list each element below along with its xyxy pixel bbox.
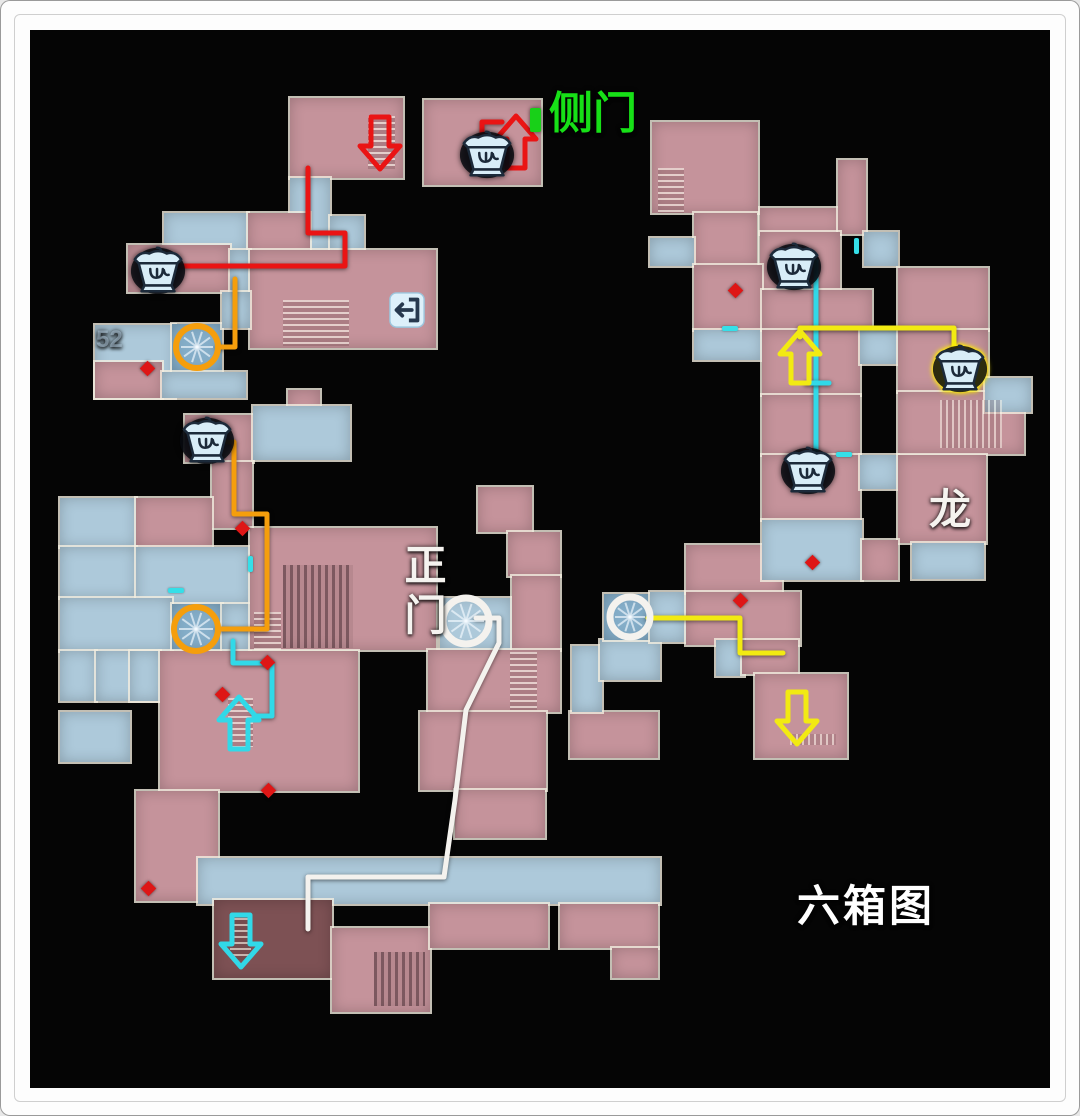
red-diamond-marker — [728, 283, 744, 299]
red-diamond-marker — [805, 555, 821, 571]
red-diamond-marker — [261, 783, 277, 799]
flat-markers-layer — [0, 0, 1080, 1116]
red-diamond-marker — [140, 361, 156, 377]
label-dragon: 龙 — [929, 489, 971, 531]
red-diamond-marker — [215, 687, 231, 703]
screenshot-frame: 侧门 正门 龙 六箱图 52 — [0, 0, 1080, 1116]
red-diamond-marker — [260, 655, 276, 671]
door-tick — [722, 326, 738, 331]
red-diamond-marker — [733, 593, 749, 609]
red-diamond-marker — [235, 521, 251, 537]
red-diamond-marker — [141, 881, 157, 897]
side-door-marker — [530, 108, 541, 132]
door-tick — [168, 588, 184, 593]
door-tick — [248, 556, 253, 572]
label-six-box-map: 六箱图 — [797, 886, 935, 929]
label-room-52: 52 — [96, 328, 123, 352]
door-tick — [854, 238, 859, 254]
label-side-door: 侧门 — [549, 92, 637, 136]
label-main-gate: 正门 — [401, 543, 443, 643]
door-tick — [836, 452, 852, 457]
